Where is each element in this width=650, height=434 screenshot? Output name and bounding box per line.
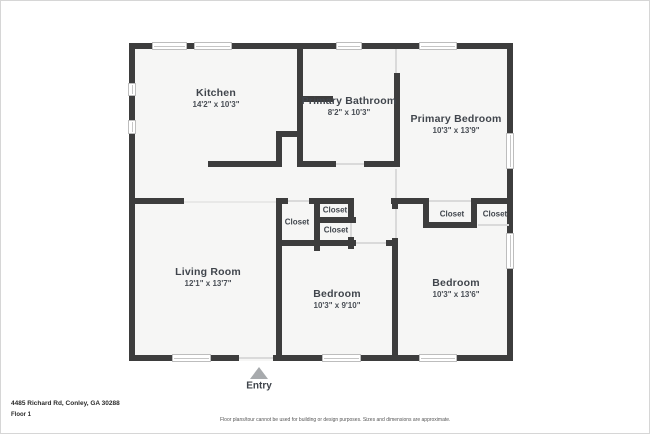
window [128, 120, 136, 134]
wall [392, 238, 398, 361]
wall [303, 161, 336, 167]
room-label-bedroom-middle: Bedroom 10'3" x 9'10" [313, 288, 361, 310]
address-text: 4485 Richard Rd, Conley, GA 30288 [11, 400, 120, 407]
room-dimensions: 10'3" x 13'6" [432, 290, 480, 299]
room-opening [184, 201, 276, 203]
entry-arrow-icon [250, 367, 268, 379]
wall [276, 198, 288, 204]
window [322, 354, 361, 362]
room-name: Primary Bathroom [302, 95, 397, 107]
window [506, 233, 514, 269]
window [128, 83, 136, 96]
entry-label: Entry [246, 381, 272, 392]
room-dimensions: 12'1" x 13'7" [175, 279, 241, 288]
window [172, 354, 211, 362]
window [336, 42, 362, 50]
room-dimensions: 10'3" x 9'10" [313, 301, 361, 310]
room-label-kitchen: Kitchen 14'2" x 10'3" [193, 87, 240, 109]
window [194, 42, 232, 50]
window [506, 133, 514, 169]
room-dimensions: 10'3" x 13'9" [410, 126, 501, 135]
room-name: Primary Bedroom [410, 113, 501, 125]
floor-number-text: Floor 1 [11, 412, 31, 418]
room-label-bedroom-right: Bedroom 10'3" x 13'6" [432, 277, 480, 299]
door-opening [350, 223, 352, 237]
door-opening [395, 169, 397, 198]
door-opening [288, 200, 309, 202]
door-opening [336, 163, 364, 165]
window [419, 42, 457, 50]
wall [276, 131, 303, 137]
door-opening [478, 224, 509, 226]
room-label-primary-bedroom: Primary Bedroom 10'3" x 13'9" [410, 113, 501, 135]
room-label-living-room: Living Room 12'1" x 13'7" [175, 266, 241, 288]
room-name: Living Room [175, 266, 241, 278]
room-name: Bedroom [432, 277, 480, 289]
window [419, 354, 457, 362]
door-opening [395, 49, 397, 73]
wall [392, 198, 398, 209]
wall [394, 73, 400, 167]
door-opening [429, 200, 471, 202]
disclaimer-text: Floor plans/tour cannot be used for buil… [220, 417, 450, 423]
wall [276, 198, 282, 361]
closet-label: Closet [324, 226, 348, 235]
wall [348, 198, 354, 223]
room-name: Kitchen [193, 87, 240, 99]
entry-opening [239, 357, 273, 359]
closet-label: Closet [440, 210, 464, 219]
door-opening [356, 242, 386, 244]
wall [129, 198, 184, 204]
wall [423, 222, 477, 228]
wall [208, 161, 282, 167]
room-name: Bedroom [313, 288, 361, 300]
window [152, 42, 187, 50]
room-dimensions: 14'2" x 10'3" [193, 100, 240, 109]
closet-label: Closet [285, 218, 309, 227]
wall [276, 240, 356, 246]
room-label-primary-bathroom: Primary Bathroom 8'2" x 10'3" [302, 95, 397, 117]
door-opening [395, 209, 397, 238]
closet-label: Closet [323, 206, 347, 215]
floor-plan: Kitchen 14'2" x 10'3" Primary Bathroom 8… [0, 0, 650, 434]
room-dimensions: 8'2" x 10'3" [302, 108, 397, 117]
wall [386, 240, 398, 246]
wall [471, 198, 513, 204]
closet-label: Closet [483, 210, 507, 219]
